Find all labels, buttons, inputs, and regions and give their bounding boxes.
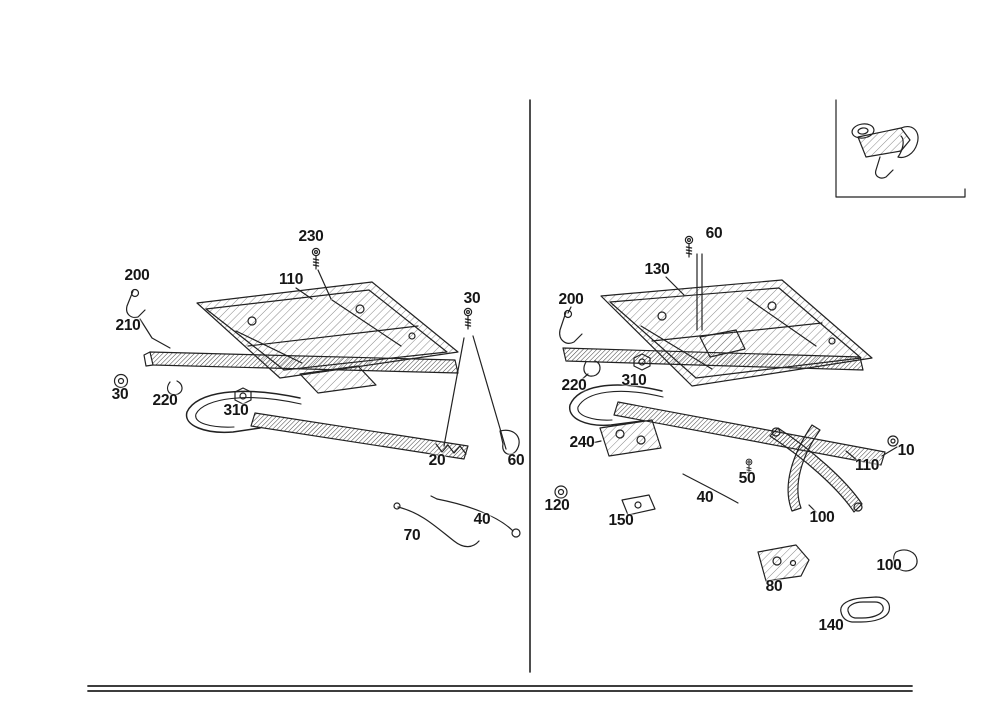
cover-plate (841, 597, 890, 622)
clip-icon (580, 361, 600, 381)
bolt-icon (746, 459, 752, 475)
inset-box (836, 100, 965, 197)
parts-diagram-page: 2301102002103030220310206040706013020022… (0, 0, 1000, 707)
clip-icon (168, 381, 182, 395)
washer-icon (555, 486, 567, 498)
right-assembly-drawing (555, 236, 917, 622)
rod-icon (683, 474, 738, 503)
foot-bracket (622, 495, 655, 515)
lever-icon (770, 425, 862, 512)
rod-icon (394, 503, 479, 547)
latch-hook (127, 290, 170, 349)
bolt-icon (444, 308, 506, 449)
seat-frame (197, 282, 458, 393)
nut-icon (235, 388, 251, 404)
left-assembly-drawing (115, 248, 521, 546)
diagram-art (0, 0, 1000, 707)
clip-icon (894, 550, 917, 571)
lever-icon (500, 430, 519, 454)
slide-rail (144, 352, 468, 459)
footer-rule (88, 686, 912, 691)
rod-icon (431, 496, 520, 537)
latch-hook (560, 307, 582, 343)
washer-icon (115, 375, 128, 388)
inset-part (851, 123, 918, 178)
foot-bracket (758, 545, 809, 581)
